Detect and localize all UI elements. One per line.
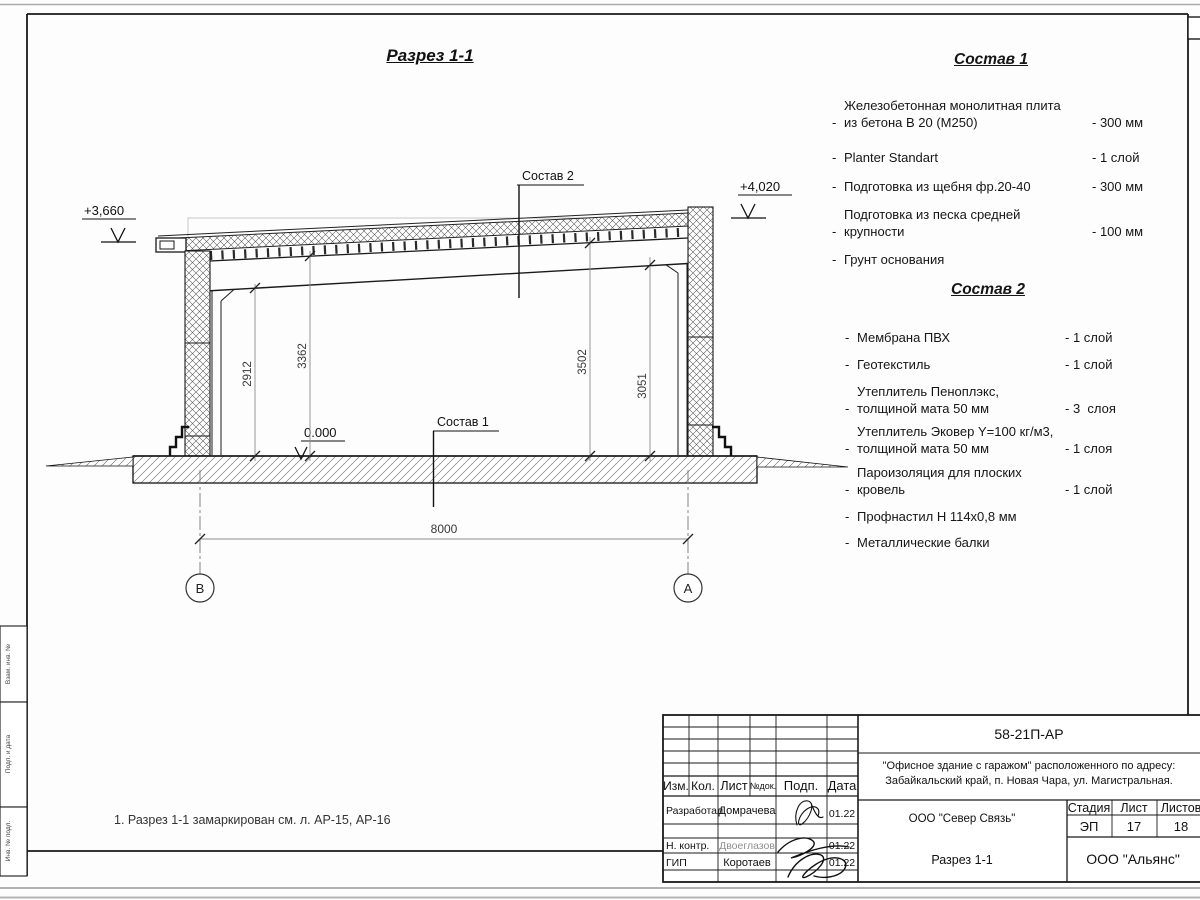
beam-bottom-line	[206, 264, 688, 292]
axis-letter-a: А	[684, 581, 693, 596]
bullet: -	[832, 179, 840, 196]
item-name: Planter Standart	[844, 150, 1086, 167]
leader-label-sostav1: Состав 1	[437, 415, 489, 429]
col-data: Дата	[828, 778, 858, 793]
axis-letter-b: В	[196, 581, 205, 596]
dim-8000: 8000	[431, 522, 458, 536]
sheet-value: 17	[1127, 819, 1141, 834]
client-org: ООО "Альянс"	[1086, 851, 1180, 867]
leader-label-sostav2: Состав 2	[522, 169, 574, 183]
bullet: -	[832, 252, 840, 269]
row1-date: 01.22	[829, 808, 855, 820]
bullet: -	[845, 535, 853, 552]
list-item: - Утеплитель Эковер Y=100 кг/м3, толщино…	[845, 424, 1117, 458]
row2-name: Двоеглазов	[719, 840, 775, 852]
bullet: -	[845, 401, 853, 418]
stage-label: Стадия	[1068, 801, 1111, 815]
page-title: Разрез 1-1	[340, 46, 520, 66]
item-value: - 1 слой	[1065, 357, 1117, 374]
bullet: -	[845, 441, 853, 458]
item-value: - 100 мм	[1092, 224, 1150, 241]
roof-edge-box-inner	[160, 241, 174, 249]
dim-3502: 3502	[577, 349, 589, 375]
dim-2912: 2912	[242, 361, 254, 387]
bullet: -	[845, 330, 853, 347]
sostav2-list: Состав 2 - Мембрана ПВХ - 1 слой - Геоте…	[845, 280, 1117, 552]
list-item: - Подготовка из щебня фр.20-40 - 300 мм	[832, 179, 1150, 196]
col-list: Лист	[720, 779, 747, 793]
doc-title: Разрез 1-1	[931, 853, 992, 867]
bullet: -	[845, 509, 853, 526]
item-value: - 1 слоя	[1065, 441, 1117, 458]
row3-role: ГИП	[666, 857, 687, 869]
elevation-zero: 0.000	[304, 425, 337, 440]
span-dimension: 8000 В А	[186, 470, 702, 602]
corner-cell	[1188, 17, 1200, 39]
item-value: - 3 слоя	[1065, 401, 1117, 418]
item-name: Геотекстиль	[857, 357, 1059, 374]
row1-name: Домрачева	[719, 805, 777, 817]
right-wall	[688, 207, 713, 456]
roof-assembly	[156, 210, 688, 291]
item-name: Подготовка из песка средней крупности	[844, 207, 1086, 241]
right-capital-chamfer	[666, 265, 678, 273]
floor-slab	[46, 427, 848, 483]
elevation-left: +3,660	[84, 203, 124, 218]
list-item: - Пароизоляция для плоских кровель - 1 с…	[845, 465, 1117, 499]
sostav1-list: Состав 1 - Железобетонная монолитная пли…	[832, 50, 1150, 269]
item-name: Утеплитель Эковер Y=100 кг/м3, толщиной …	[857, 424, 1059, 458]
col-ndok: №док.	[750, 781, 776, 791]
elevation-right: +4,020	[740, 179, 780, 194]
item-name: Грунт основания	[844, 252, 1086, 269]
bullet: -	[832, 224, 840, 241]
bullet: -	[832, 115, 840, 132]
binding-label-vzam: Взам. инв. №	[5, 644, 12, 684]
sheets-value: 18	[1174, 819, 1188, 834]
list-item: - Planter Standart - 1 слой	[832, 150, 1150, 167]
item-value: - 300 мм	[1092, 115, 1150, 132]
item-value: - 1 слой	[1065, 330, 1117, 347]
bullet: -	[845, 357, 853, 374]
project-line2: Забайкальский край, п. Новая Чара, ул. М…	[885, 775, 1173, 787]
left-wall	[185, 251, 210, 456]
item-name: Мембрана ПВХ	[857, 330, 1059, 347]
row3-name: Коротаев	[723, 857, 771, 869]
doc-code: 58-21П-АР	[994, 726, 1063, 742]
sostav1-heading: Состав 1	[832, 50, 1150, 70]
designer-org: ООО "Север Связь"	[909, 813, 1016, 825]
item-name: Подготовка из щебня фр.20-40	[844, 179, 1086, 196]
col-kol: Кол.	[691, 779, 715, 793]
right-base-flashing	[712, 427, 731, 456]
row1-role: Разработал	[666, 805, 723, 817]
sostav2-heading: Состав 2	[859, 280, 1117, 300]
left-capital-chamfer	[221, 290, 234, 302]
dim-3051: 3051	[637, 373, 649, 399]
list-item: - Профнастил Н 114х0,8 мм	[845, 509, 1117, 526]
item-name: Металлические балки	[857, 535, 1059, 552]
drawing-note: 1. Разрез 1-1 замаркирован см. л. АР-15,…	[114, 813, 391, 827]
list-item: - Подготовка из песка средней крупности …	[832, 207, 1150, 241]
sheet-label: Лист	[1120, 801, 1147, 815]
item-value: - 300 мм	[1092, 179, 1150, 196]
row2-role: Н. контр.	[666, 840, 709, 852]
list-item: - Грунт основания	[832, 252, 1150, 269]
list-item: - Железобетонная монолитная плита из бет…	[832, 98, 1150, 132]
item-value: - 1 слой	[1065, 482, 1117, 499]
list-item: - Геотекстиль - 1 слой	[845, 357, 1117, 374]
list-item: - Металлические балки	[845, 535, 1117, 552]
col-izm: Изм.	[663, 779, 689, 793]
item-name: Железобетонная монолитная плита из бетон…	[844, 98, 1086, 132]
bullet: -	[832, 150, 840, 167]
col-podp: Подп.	[784, 778, 819, 793]
item-name: Пароизоляция для плоских кровель	[857, 465, 1059, 499]
right-apron	[757, 457, 848, 467]
bullet: -	[845, 482, 853, 499]
left-apron	[46, 457, 133, 466]
binding-label-podp: Подп. и дата	[5, 734, 12, 773]
list-item: - Мембрана ПВХ - 1 слой	[845, 330, 1117, 347]
item-name: Профнастил Н 114х0,8 мм	[857, 509, 1059, 526]
dim-3362: 3362	[297, 343, 309, 369]
item-value: - 1 слой	[1092, 150, 1150, 167]
sheets-label: Листов	[1161, 801, 1200, 815]
list-item: - Утеплитель Пеноплэкс, толщиной мата 50…	[845, 384, 1117, 418]
binding-label-inv: Инв. № подл.	[5, 821, 12, 862]
item-name: Утеплитель Пеноплэкс, толщиной мата 50 м…	[857, 384, 1059, 418]
project-line1: "Офисное здание с гаражом" расположенног…	[883, 760, 1176, 772]
stage-value: ЭП	[1080, 819, 1099, 834]
